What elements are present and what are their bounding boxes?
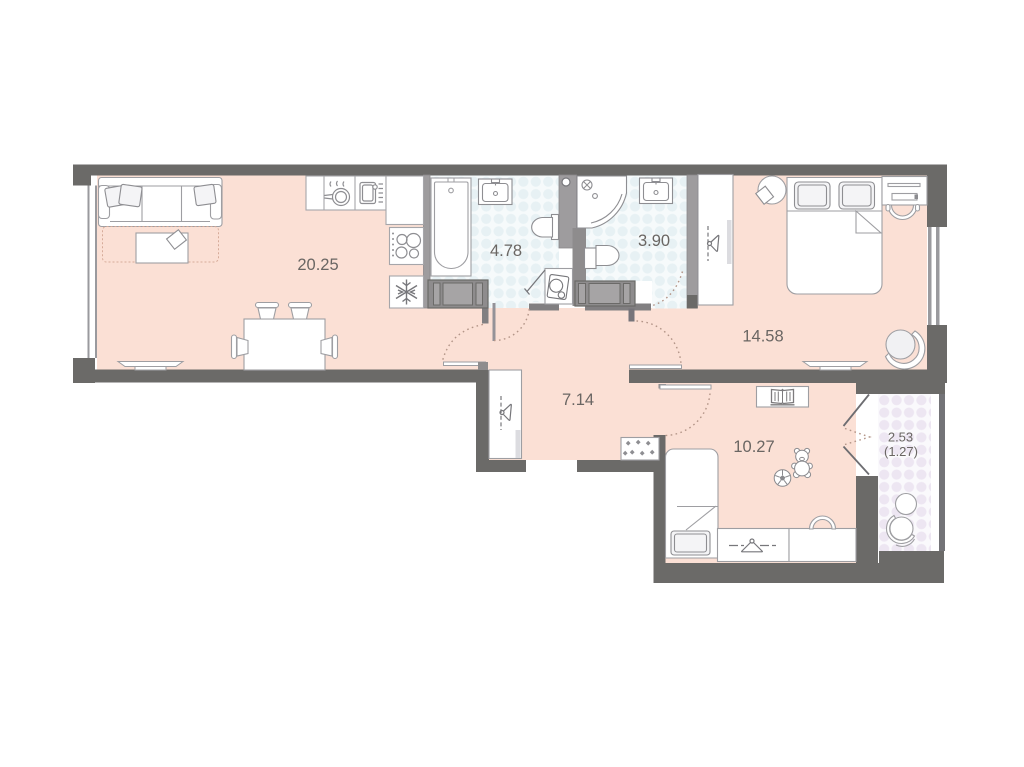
svg-text:4.78: 4.78 (490, 242, 522, 260)
svg-text:2.53: 2.53 (888, 430, 913, 445)
svg-text:10.27: 10.27 (733, 438, 774, 456)
svg-text:7.14: 7.14 (562, 391, 594, 409)
svg-text:3.90: 3.90 (638, 232, 670, 250)
svg-text:20.25: 20.25 (297, 256, 338, 274)
svg-text:14.58: 14.58 (742, 328, 783, 346)
svg-text:(1.27): (1.27) (884, 444, 918, 459)
